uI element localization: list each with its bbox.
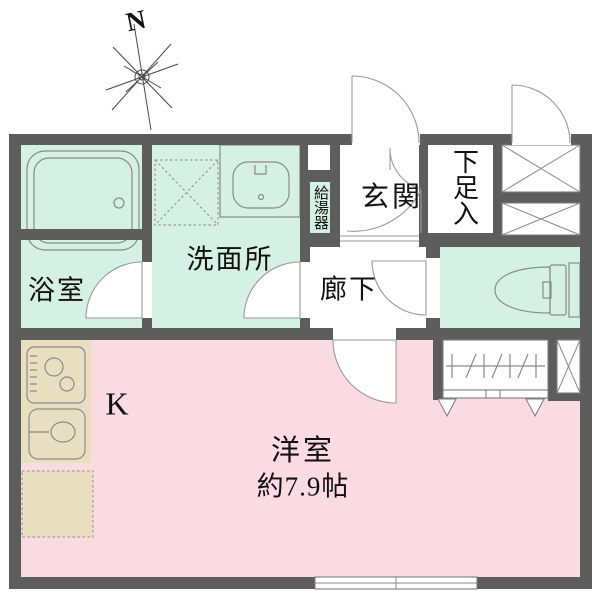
- wall-closet-west: [433, 340, 443, 400]
- floor-plan: 浴室 洗面所 玄関 下足入 給湯器 廊下 K 洋室 約7.9帖 N: [0, 0, 600, 600]
- bathroom-label: 浴室: [28, 269, 86, 308]
- refrigerator-space: [22, 471, 93, 537]
- wall-bath-washroom-upper: [142, 145, 152, 262]
- compass-icon: [106, 24, 178, 130]
- bathroom-door-opening: [142, 262, 152, 318]
- wall-bathtub: [21, 229, 152, 240]
- storage-door-opening: [512, 134, 571, 145]
- entrance-step: [340, 236, 419, 241]
- room-door-opening: [333, 328, 396, 340]
- shoe-storage-label: 下足入: [450, 148, 479, 226]
- wall-heater-east: [330, 145, 340, 235]
- water-heater-label: 給湯器: [312, 185, 328, 230]
- wall-outer-bottom: [9, 577, 592, 589]
- pipe-shaft: [502, 203, 580, 235]
- corridor-label: 廊下: [320, 268, 378, 307]
- western-room-label: 洋室: [271, 427, 335, 469]
- wall-mid-east: [396, 328, 592, 340]
- wall-under-heater: [300, 233, 340, 247]
- wall-closet-east: [548, 340, 557, 401]
- wall-corridor-toilet-upper: [426, 247, 440, 258]
- wall-shaft-divider: [493, 192, 592, 203]
- entrance-door: [352, 76, 419, 143]
- wall-outer-top: [9, 134, 592, 145]
- entrance-door-opening: [352, 134, 420, 145]
- floor-plan-drawing: [0, 0, 600, 600]
- toilet-door-opening: [426, 258, 440, 318]
- window: [315, 577, 477, 589]
- washroom-door-opening: [300, 262, 310, 318]
- washroom-label: 洗面所: [187, 238, 274, 277]
- toilet-floor: [440, 247, 580, 328]
- wall-shoe-shaft: [493, 145, 502, 233]
- wall-shaft-bottom: [548, 393, 592, 401]
- wall-heater-top: [308, 170, 330, 182]
- kitchen-label: K: [105, 386, 128, 423]
- wall-outer-left: [9, 134, 21, 589]
- shaft-by-closet: [557, 340, 580, 393]
- storage-shaft-upper: [502, 145, 580, 192]
- wall-mid-west: [21, 328, 333, 340]
- shaft-niche: [308, 145, 330, 170]
- entrance-label: 玄関: [361, 175, 423, 215]
- toilet-door: [372, 261, 426, 315]
- western-room-size-label: 約7.9帖: [257, 465, 350, 504]
